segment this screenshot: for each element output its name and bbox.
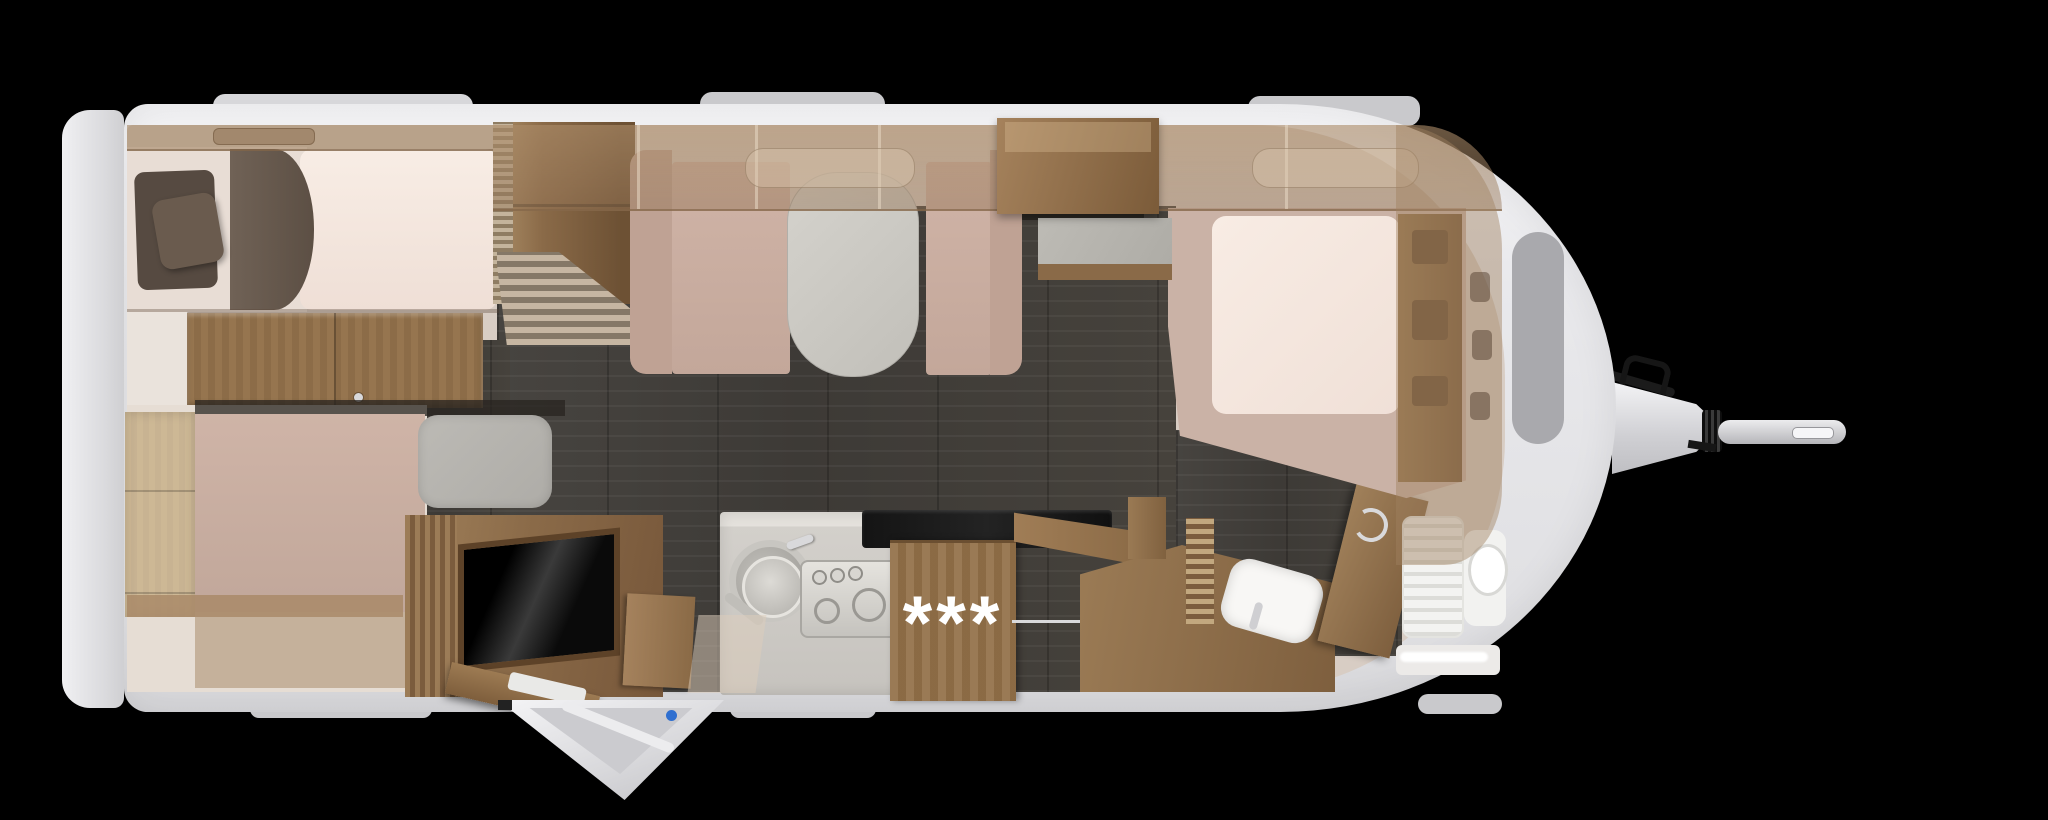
locker-recess-dinette: [745, 148, 915, 188]
skirt-window-front: [1418, 694, 1502, 714]
sideboard-seam: [334, 313, 336, 408]
overhead-box-top-face: [1005, 122, 1151, 152]
hob-burner-large: [852, 588, 886, 622]
seat-mat: [418, 415, 552, 508]
hob-burner-small: [814, 598, 840, 624]
hob-knob-1: [812, 570, 827, 585]
tv-screen: [458, 527, 620, 672]
front-wall-hatch: [1512, 232, 1564, 444]
sideboard-counter-gray: [1038, 218, 1172, 266]
hob-knob-2: [830, 568, 845, 583]
pale-partition: [688, 615, 767, 693]
lounge-bed-platform: [195, 414, 425, 612]
tv-cabinet-door-open: [623, 593, 696, 688]
pillow-small: [150, 191, 225, 271]
locker-divider-1: [637, 125, 640, 209]
cabinet-tall-left: [125, 412, 195, 617]
entry-door-open: [498, 700, 724, 800]
washroom-floor-glow: [1400, 652, 1488, 662]
kitchen-equipment-badge: ***: [886, 586, 1020, 662]
sideboard-counter-front: [1038, 264, 1172, 280]
roof-hatch-outline: [213, 128, 315, 145]
wall-vent-1: [1470, 272, 1490, 302]
hitch-coupler: [1612, 382, 1710, 474]
wall-vent-3: [1470, 392, 1490, 420]
rear-bed-mattress: [300, 149, 497, 310]
rear-bumper: [62, 110, 124, 708]
entry-door-lock: [666, 710, 677, 721]
entry-door-hinge: [498, 700, 512, 710]
cabinet-white-rear: [127, 312, 188, 408]
locker-recess-front: [1252, 148, 1419, 188]
cabinet-tall-left-seam1: [125, 490, 195, 492]
front-bed-mattress: [1212, 216, 1400, 414]
caravan-floorplan-render: ***: [0, 0, 2048, 820]
wall-vent-2: [1472, 330, 1492, 360]
hitch-shaft-slot: [1792, 427, 1834, 439]
rear-bed-blanket: [230, 149, 314, 310]
vanity-tambour: [1186, 518, 1214, 624]
hob-knob-3: [848, 566, 863, 581]
cabinet-tall-left-seam2: [125, 592, 195, 594]
nightstand: [1128, 497, 1166, 559]
